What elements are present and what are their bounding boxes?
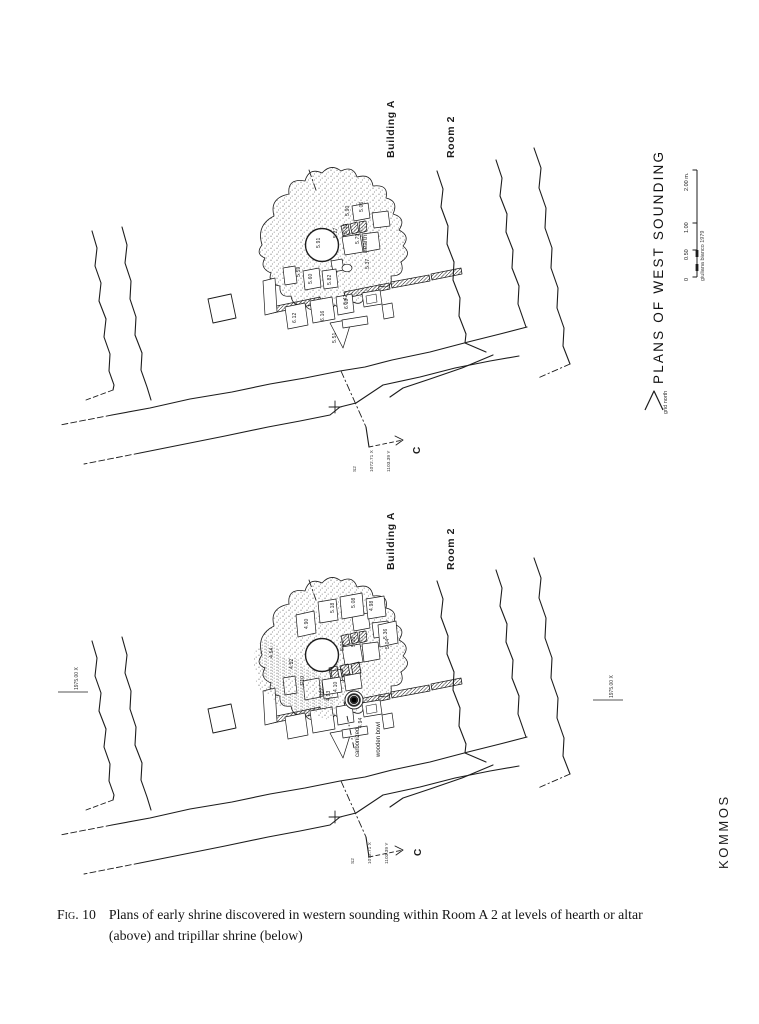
spot-elevation: 6.12: [292, 312, 298, 323]
datum-point-label-top: S2 1072.71 X 1103.39 Y: [341, 450, 405, 472]
spot-elevation: 5.60: [308, 273, 314, 284]
scale-tick-label: 0.50: [684, 249, 690, 260]
spot-elevation: 5.27: [333, 227, 339, 238]
spot-elevation: 4.98: [369, 600, 375, 611]
section-marker-c-top: C: [412, 447, 423, 454]
spot-elevation: 5.18: [330, 602, 336, 613]
carbonized-bowl-label: carbonized wooden bowl: [341, 722, 397, 757]
scanned-paper-page: Building A Room 2 hearth S2 1072.71 X 11…: [0, 0, 759, 1024]
top-plan-drawing: [60, 148, 570, 464]
building-room-label-top: Building A Room 2: [341, 100, 501, 158]
room-label: Room 2: [441, 512, 461, 570]
bottom-plan-drawing: [58, 558, 623, 874]
spot-elevation: 5.91: [316, 237, 322, 248]
spot-elevation: 5.51: [332, 332, 338, 343]
grid-coordinate-right: 1975.00 X: [609, 675, 615, 698]
hearth-label: hearth: [362, 235, 369, 253]
grid-north-label: grid north: [663, 391, 669, 414]
spot-elevation: 4.10: [333, 681, 339, 692]
spot-elevation: F10: [300, 676, 306, 685]
spot-elevation: 5.08: [351, 597, 357, 608]
building-room-label-bottom: Building A Room 2: [341, 512, 501, 570]
section-marker-c-bottom: C: [413, 849, 424, 856]
site-name-label: KOMMOS GREEK SANCTUARY: [649, 701, 759, 869]
caption-text: Plans of early shrine discovered in west…: [109, 905, 643, 946]
spot-elevation: 5.10: [351, 636, 357, 647]
spot-elevation: 5.01: [340, 640, 346, 651]
building-label: Building A: [381, 100, 401, 158]
scale-bar: [693, 170, 699, 277]
spot-elevation: 5.37: [365, 258, 371, 269]
spot-elevation: B22: [319, 688, 325, 698]
scale-tick-label: 0: [684, 278, 690, 281]
building-label: Building A: [381, 512, 401, 570]
scale-tick-label: 1.00: [684, 222, 690, 233]
spot-elevation: 5.79: [355, 233, 361, 244]
scale-tick-label: 2.00 m.: [684, 173, 690, 191]
figure-title: PLANS OF WEST SOUNDING: [651, 150, 666, 384]
grid-coordinate-left: 1975.00 X: [74, 667, 80, 690]
spot-elevation: 4.52: [289, 658, 295, 669]
spot-elevation: 5.04: [385, 638, 391, 649]
spot-elevation: 4.54: [269, 647, 275, 658]
spot-elevation: 4.94: [358, 717, 364, 728]
spot-elevation: 5.06: [359, 201, 365, 212]
spot-elevation: 4.93: [326, 690, 332, 701]
spot-elevation: 5.59: [296, 266, 302, 277]
draughtsman-credit: giuliana bianco 1979: [700, 231, 706, 281]
datum-point-label-bottom: S2 1072.71 X 1103.39 Y: [339, 842, 403, 864]
spot-elevation: 4.90: [304, 618, 310, 629]
figure-number: Fig. 10: [57, 905, 96, 946]
spot-elevation: 5.13: [343, 223, 349, 234]
spot-elevation: 6.19: [344, 298, 350, 309]
spot-elevation: 5.82: [327, 274, 333, 285]
figure-caption: Fig. 10 Plans of early shrine discovered…: [57, 905, 719, 946]
spot-elevation: 6.16: [320, 310, 326, 321]
spot-elevation: 5.90: [345, 205, 351, 216]
room-label: Room 2: [441, 100, 461, 158]
north-arrow-icon: [645, 391, 663, 410]
